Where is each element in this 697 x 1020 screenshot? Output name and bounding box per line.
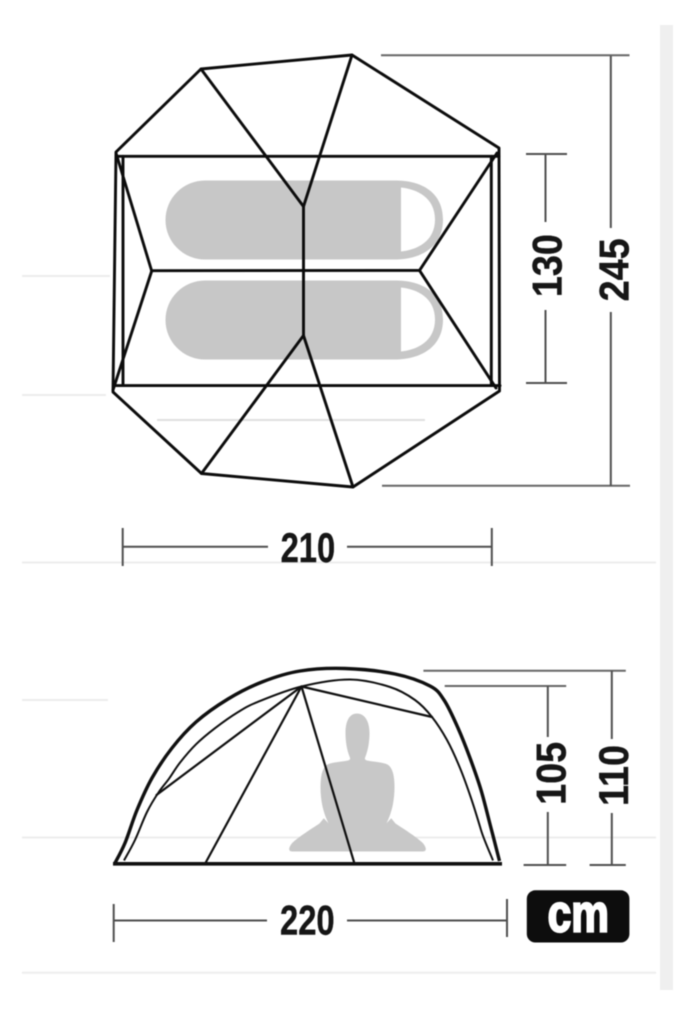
svg-text:130: 130 xyxy=(525,234,571,297)
svg-text:cm: cm xyxy=(548,885,609,944)
svg-text:210: 210 xyxy=(281,524,336,571)
svg-text:110: 110 xyxy=(591,745,637,806)
svg-text:220: 220 xyxy=(280,897,335,944)
svg-text:105: 105 xyxy=(528,742,574,805)
svg-text:245: 245 xyxy=(592,238,638,301)
